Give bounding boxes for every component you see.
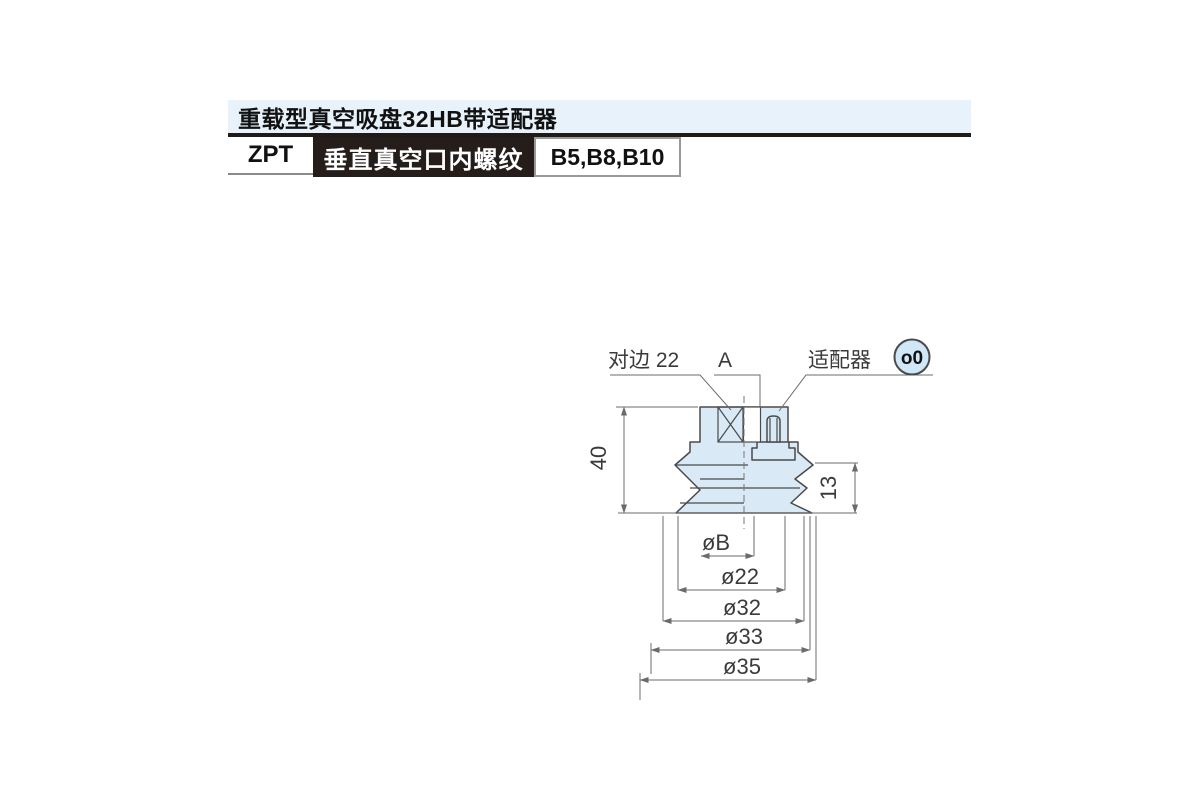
- dim-dia-32: ø32: [723, 595, 761, 620]
- dim-dia-b: øB: [702, 530, 730, 555]
- dim-dia-35: ø35: [723, 654, 761, 679]
- adapter-badge: o0: [895, 340, 930, 375]
- adapter-label: 适配器: [808, 349, 871, 372]
- dim-dia-22: ø22: [721, 564, 759, 589]
- adapter-badge-label: o0: [901, 348, 923, 369]
- dim-overall-height: 40: [586, 446, 611, 470]
- pad-drawing-svg: 对边 22 A 适配器 o0 40 13 øB ø22 ø32 ø33 ø35: [0, 0, 1200, 800]
- across-flats-label: 对边 22: [608, 349, 679, 372]
- dim-bellows-height: 13: [816, 476, 841, 500]
- dim-dia-33: ø33: [725, 624, 763, 649]
- technical-drawing: 对边 22 A 适配器 o0 40 13 øB ø22 ø32 ø33 ø35: [0, 0, 1200, 800]
- leader-lines: [610, 375, 933, 411]
- port-thread-label: A: [718, 349, 732, 372]
